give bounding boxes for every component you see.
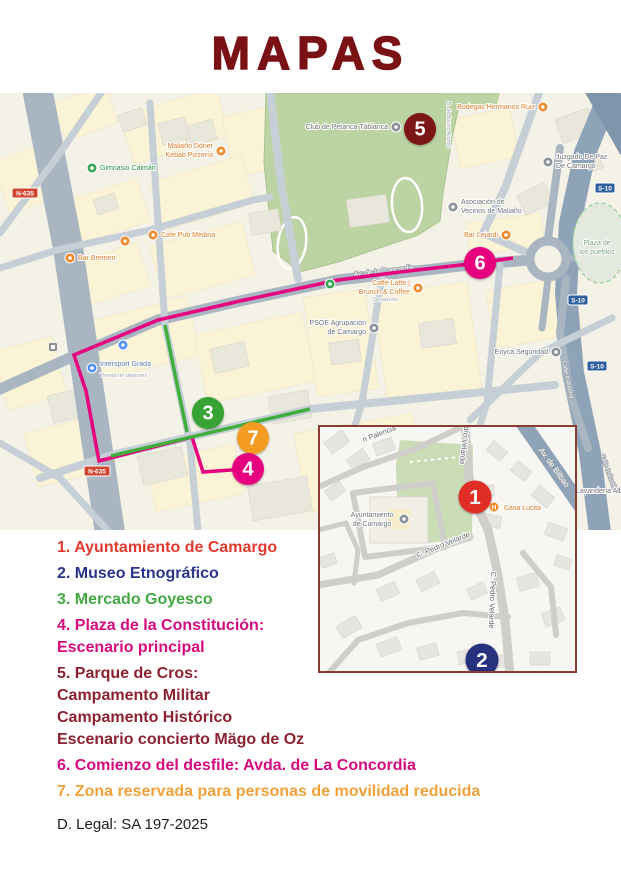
poi-label: Brunch & Coffee bbox=[359, 289, 410, 296]
poi-square-icon bbox=[51, 345, 55, 349]
poi-label: Enyca Seguridad bbox=[495, 349, 548, 356]
poi-label: Kebab Pizzería bbox=[166, 152, 214, 159]
page-title: MAPAS bbox=[0, 26, 621, 80]
legend-item-3: 3. Mercado Goyesco bbox=[57, 589, 597, 611]
poi-label: Maliaño Döner bbox=[167, 143, 213, 150]
road-badge-text: N-635 bbox=[88, 469, 106, 476]
street-label: B. de Bruno Alonso bbox=[445, 101, 451, 148]
poi-marker-dot bbox=[451, 205, 455, 209]
building bbox=[346, 194, 390, 227]
legend-item-2: 2. Museo Etnográfico bbox=[57, 563, 597, 585]
poi-marker-dot bbox=[90, 366, 94, 370]
poi-glyph: H bbox=[492, 505, 497, 512]
poi-label: PSOE Agrupación bbox=[310, 320, 367, 327]
poi-label: Club de Petanca Táblanca bbox=[306, 124, 388, 131]
route-marker-num: 5 bbox=[414, 119, 425, 141]
poi-sublabel: Desayuno bbox=[373, 297, 398, 303]
building bbox=[418, 319, 456, 349]
poi-label: Intersport Grada bbox=[100, 361, 151, 368]
poi-marker-dot bbox=[394, 125, 398, 129]
route-marker-num: 7 bbox=[247, 428, 258, 450]
poi-label: De Camargo bbox=[556, 163, 596, 170]
poi-label: Ayuntamiento bbox=[351, 512, 394, 519]
poi-marker-dot bbox=[123, 239, 127, 243]
road-badge-text: S-10 bbox=[590, 364, 604, 371]
legend-item-6: 6. Comienzo del desfile: Avda. de La Con… bbox=[57, 755, 597, 777]
poi-marker-dot bbox=[372, 326, 376, 330]
poi-label: Gimnasio Caimán bbox=[100, 165, 156, 172]
poi-marker-dot bbox=[151, 233, 155, 237]
building bbox=[248, 209, 281, 236]
route-marker-num: 6 bbox=[474, 253, 485, 275]
building bbox=[329, 339, 362, 365]
legend-item-7: 7. Zona reservada para personas de movil… bbox=[57, 781, 597, 803]
poi-label: de Camargo bbox=[353, 521, 392, 528]
legend-item-5: 5. Parque de Cros: Campamento Militar Ca… bbox=[57, 663, 597, 751]
poi-label: los pueblos bbox=[579, 249, 615, 256]
poi-marker-dot bbox=[402, 517, 406, 521]
poi-label: Cafe Pub Medina bbox=[161, 232, 215, 239]
poi-label: Asociación de bbox=[461, 199, 505, 206]
footer-legal: D. Legal: SA 197-2025 bbox=[57, 816, 208, 833]
poi-marker-dot bbox=[328, 282, 332, 286]
route-marker-num: 4 bbox=[242, 459, 254, 481]
poi-label: Caffé Latte | bbox=[372, 280, 410, 287]
route-marker-num: 1 bbox=[469, 486, 480, 509]
legend: 1. Ayuntamiento de Camargo2. Museo Etnog… bbox=[57, 537, 597, 807]
poi-marker-dot bbox=[68, 256, 72, 260]
road-badge-text: N-635 bbox=[16, 191, 34, 198]
poi-label: Vecinos de Maliaño bbox=[461, 208, 522, 215]
poi-label: Casa Lucita bbox=[504, 505, 541, 512]
poi-marker-dot bbox=[219, 149, 223, 153]
poi-label: de Camargo bbox=[327, 329, 366, 336]
poi-marker-dot bbox=[541, 105, 545, 109]
roundabout bbox=[530, 241, 566, 277]
poi-sublabel: Tienda de deportes bbox=[100, 373, 147, 379]
legend-item-1: 1. Ayuntamiento de Camargo bbox=[57, 537, 597, 559]
poi-label: Juzgado De Paz bbox=[556, 154, 608, 161]
poi-marker-dot bbox=[546, 160, 550, 164]
poi-marker-dot bbox=[90, 166, 94, 170]
poi-label: Bar Bremen bbox=[78, 255, 115, 262]
poi-label: Lavandería Alba bbox=[576, 488, 621, 495]
road-badge-text: S-10 bbox=[571, 298, 585, 305]
poi-label: Bar Lejardi bbox=[464, 232, 498, 239]
route-marker-num: 3 bbox=[202, 403, 213, 425]
road-badge-text: S-10 bbox=[598, 186, 612, 193]
poi-marker-dot bbox=[554, 350, 558, 354]
poi-label: Plaza de bbox=[583, 240, 610, 247]
poi-label: Bodegas Hermanos Ruiz bbox=[457, 104, 535, 111]
poi-marker-dot bbox=[504, 233, 508, 237]
poi-marker-dot bbox=[416, 286, 420, 290]
legend-item-4: 4. Plaza de la Constitución: Escenario p… bbox=[57, 615, 597, 659]
poi-marker-dot bbox=[121, 343, 125, 347]
